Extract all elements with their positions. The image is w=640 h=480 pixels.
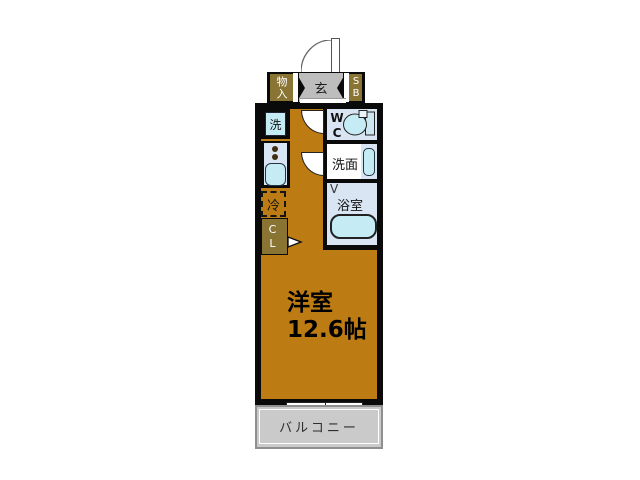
entrance-door-arc-icon [301,40,331,73]
kitchen-sink-icon [265,163,286,186]
balcony-label: バルコニー [279,417,359,436]
vanity-sink-icon [363,148,375,176]
closet-label: CL [267,223,278,251]
burner-icon [272,154,278,160]
storage-label: 物入 [270,74,293,101]
washing-machine: 洗 [261,109,290,139]
door-jamb-icon [298,76,305,100]
floor-plan: 物入 玄 SB 洗 [0,0,640,480]
entrance-door-leaf-icon [331,38,340,74]
kitchen-panel [264,143,287,185]
wc-door-swing-icon [301,110,324,134]
bathtub-icon [330,214,377,239]
burner-icon [272,146,278,152]
shoe-box-label: SB [349,74,362,101]
bathroom-label: 浴室 [327,195,373,214]
kitchen-counter [261,141,290,188]
vanity-counter [361,144,377,179]
wall-segment [362,72,365,103]
main-room-name: 洋室 [287,290,367,317]
bathroom: V 浴室 [323,183,377,250]
fridge-space: 冷 [261,191,286,217]
washroom-door-swing-icon [301,152,324,176]
closet-door-arrow-icon [286,235,303,249]
main-unit: 洗 冷 CL WC [255,103,383,405]
balcony: バルコニー [255,405,383,449]
toilet-room: WC [323,109,377,144]
toilet-icon [342,110,376,138]
fridge-label: 冷 [267,195,280,214]
door-jamb-icon [337,76,344,100]
closet: CL [261,218,288,255]
main-room-size: 12.6帖 [287,317,367,344]
main-room-label: 洋室 12.6帖 [287,290,367,343]
balcony-floor: バルコニー [259,409,379,444]
washroom: 洗面 [323,144,377,183]
washer-label: 洗 [265,112,286,136]
bath-door-mark: V [330,182,338,196]
washroom-label: 洗面 [332,154,358,173]
